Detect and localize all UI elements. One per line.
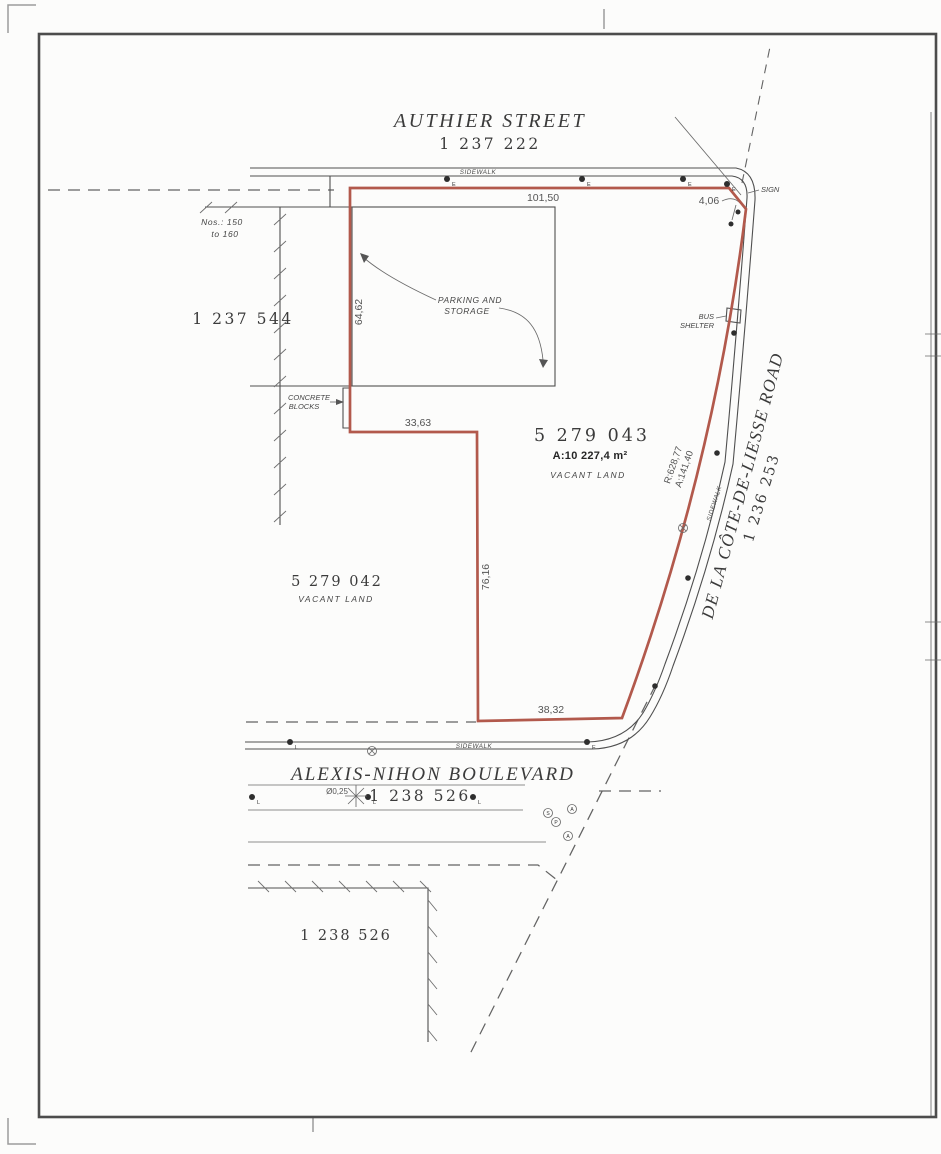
dimension-west-lower: 76,16 [480, 564, 492, 590]
vacant-land-label-subject: VACANT LAND [550, 470, 626, 480]
dimension-jog: 33,63 [405, 417, 431, 429]
bus-shelter-label-line2: SHELTER [680, 321, 715, 330]
dimension-corner-cut: 4,06 [699, 195, 720, 207]
street-name-alexis-nihon: ALEXIS-NIHON BOULEVARD [289, 764, 575, 785]
sidewalk-label-south: SIDEWALK [456, 743, 493, 750]
survey-point-icon [685, 575, 691, 581]
survey-point-icon [736, 210, 741, 215]
dimension-north: 101,50 [527, 192, 559, 204]
lamp-post-icon [470, 794, 476, 800]
street-name-authier: AUTHIER STREET [392, 110, 586, 132]
tree-diameter-label: Ø0,25 [326, 787, 348, 796]
symbol-letter-l: L [478, 800, 481, 806]
survey-point-icon [652, 683, 658, 689]
concrete-label-line1: CONCRETE [288, 393, 331, 402]
parking-label-line2: STORAGE [444, 306, 490, 316]
utility-point-icon [724, 181, 730, 187]
symbol-letter-e: E [452, 182, 456, 188]
civic-numbers-line1: Nos.: 150 [201, 217, 243, 227]
parcel-area: A:10 227,4 m² [553, 450, 628, 462]
survey-point-icon [714, 450, 720, 456]
survey-plan-sheet: S P A A E E E E E L L L L AUTHIER STREET… [0, 0, 941, 1154]
lot-number-south-building: 1 238 526 [300, 928, 392, 944]
civic-numbers-line2: to 160 [211, 229, 238, 239]
lamp-post-icon [287, 739, 293, 745]
tree-symbol-icon [345, 785, 367, 807]
utility-point-icon [680, 176, 686, 182]
cadastral-plan-drawing: S P A A E E E E E L L L L AUTHIER STREET… [0, 0, 941, 1154]
dimension-west-upper: 64,62 [353, 299, 365, 325]
lot-number-subject: 5 279 043 [534, 426, 650, 446]
parking-label-line1: PARKING AND [438, 295, 502, 305]
lot-number-northwest: 1 237 544 [192, 310, 293, 328]
symbol-letter-e: E [688, 182, 692, 188]
survey-point-icon [731, 330, 737, 336]
utility-point-icon [584, 739, 590, 745]
symbol-letter-e: E [732, 187, 736, 193]
vacant-land-label-west: VACANT LAND [298, 594, 374, 604]
sign-label: SIGN [761, 185, 780, 194]
lot-number-authier: 1 237 222 [439, 135, 540, 153]
lot-number-alexis-nihon: 1 238 526 [369, 787, 470, 805]
sidewalk-label-north: SIDEWALK [460, 169, 497, 176]
dimension-south: 38,32 [538, 704, 564, 716]
symbol-letter-l: L [295, 745, 298, 751]
symbol-letter-e: E [587, 182, 591, 188]
survey-point-icon [729, 222, 734, 227]
symbol-letter-e: E [592, 745, 596, 751]
bus-shelter-label-line1: BUS [699, 312, 714, 321]
lot-number-west: 5 279 042 [291, 574, 383, 590]
lamp-post-icon [249, 794, 255, 800]
concrete-label-line2: BLOCKS [289, 402, 319, 411]
utility-point-icon [579, 176, 585, 182]
utility-point-icon [444, 176, 450, 182]
symbol-letter-l: L [257, 800, 260, 806]
